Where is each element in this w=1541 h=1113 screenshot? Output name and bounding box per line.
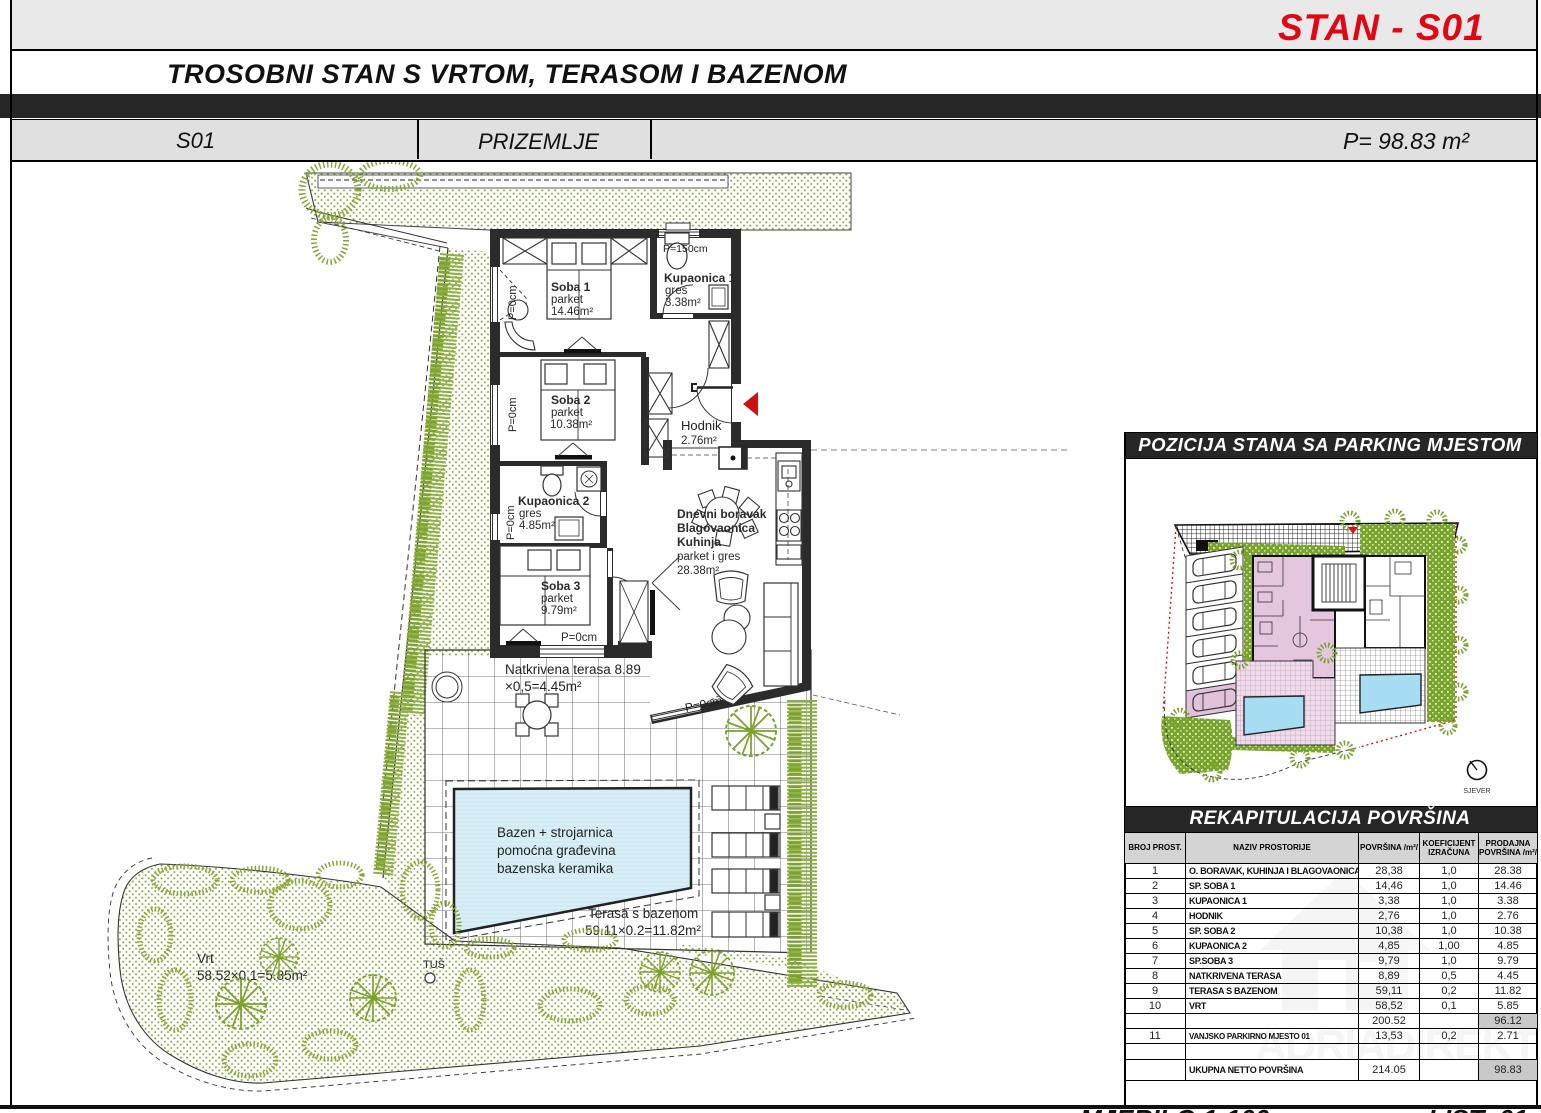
- svg-text:28.38m²: 28.38m²: [677, 565, 719, 577]
- svg-text:Hodnik: Hodnik: [681, 418, 722, 433]
- svg-text:Soba 3: Soba 3: [541, 579, 581, 593]
- svg-text:Terasa s bazenom: Terasa s bazenom: [588, 906, 698, 921]
- svg-text:parket: parket: [551, 294, 584, 306]
- svg-text:P=150cm: P=150cm: [663, 243, 708, 255]
- svg-text:P=0cm: P=0cm: [561, 632, 597, 644]
- svg-text:9.79m²: 9.79m²: [541, 605, 577, 617]
- svg-text:gres: gres: [519, 508, 542, 520]
- svg-text:parket i gres: parket i gres: [677, 551, 741, 563]
- svg-text:Soba 2: Soba 2: [551, 393, 591, 407]
- svg-text:Kupaonica 2: Kupaonica 2: [518, 494, 590, 508]
- svg-text:14.46m²: 14.46m²: [551, 306, 593, 318]
- svg-text:Vrt: Vrt: [197, 951, 214, 966]
- svg-text:parket: parket: [541, 593, 574, 605]
- svg-text:gres: gres: [665, 285, 688, 297]
- svg-text:bazenska keramika: bazenska keramika: [497, 861, 614, 876]
- svg-text:parket: parket: [551, 407, 584, 419]
- svg-text:Kupaonica 1: Kupaonica 1: [664, 271, 736, 285]
- svg-text:10.38m²: 10.38m²: [550, 419, 592, 431]
- svg-text:Natkrivena terasa 8.89: Natkrivena terasa 8.89: [505, 662, 641, 677]
- svg-text:P=0cm: P=0cm: [507, 285, 519, 320]
- svg-text:3.38m²: 3.38m²: [665, 297, 701, 309]
- svg-text:TUŠ: TUŠ: [423, 958, 445, 971]
- svg-text:Kuhinja: Kuhinja: [677, 535, 721, 549]
- svg-text:pomoćna građevina: pomoćna građevina: [497, 843, 616, 858]
- svg-text:Bazen + strojarnica: Bazen + strojarnica: [497, 825, 613, 840]
- svg-text:Blagovaonica: Blagovaonica: [677, 521, 755, 535]
- svg-text:×0,5=4.45m²: ×0,5=4.45m²: [505, 679, 582, 694]
- svg-text:P=0cm: P=0cm: [505, 505, 517, 540]
- svg-text:2.76m²: 2.76m²: [681, 435, 717, 447]
- svg-text:Dnevni boravak: Dnevni boravak: [677, 507, 767, 521]
- svg-text:P=0cm: P=0cm: [507, 397, 519, 432]
- svg-text:Soba 1: Soba 1: [551, 280, 591, 294]
- svg-text:4.85m²: 4.85m²: [519, 520, 555, 532]
